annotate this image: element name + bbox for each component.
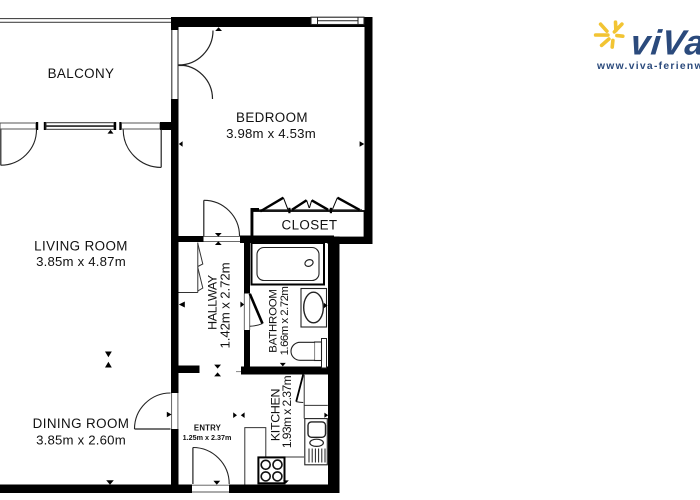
svg-text:DINING ROOM: DINING ROOM (33, 416, 130, 431)
svg-text:3.85m x 4.87m: 3.85m x 4.87m (36, 254, 126, 269)
svg-text:BALCONY: BALCONY (48, 66, 115, 81)
svg-text:LIVING ROOM: LIVING ROOM (34, 239, 128, 254)
svg-text:ENTRY: ENTRY (194, 424, 222, 433)
svg-text:viVa: viVa (629, 24, 700, 63)
svg-text:1.25m x 2.37m: 1.25m x 2.37m (183, 433, 232, 442)
svg-text:3.98m x 4.53m: 3.98m x 4.53m (226, 126, 316, 141)
svg-text:CLOSET: CLOSET (282, 218, 338, 233)
svg-text:www.viva-ferienwoh: www.viva-ferienwoh (596, 61, 700, 72)
svg-text:1.66m x 2.72m: 1.66m x 2.72m (279, 287, 291, 356)
svg-text:3.85m x 2.60m: 3.85m x 2.60m (36, 433, 126, 448)
svg-text:BEDROOM: BEDROOM (236, 110, 308, 125)
svg-text:1.93m x 2.37m: 1.93m x 2.37m (280, 375, 294, 448)
svg-text:1.42m x 2.72m: 1.42m x 2.72m (218, 262, 233, 348)
svg-text:BATHROOM: BATHROOM (268, 289, 280, 352)
